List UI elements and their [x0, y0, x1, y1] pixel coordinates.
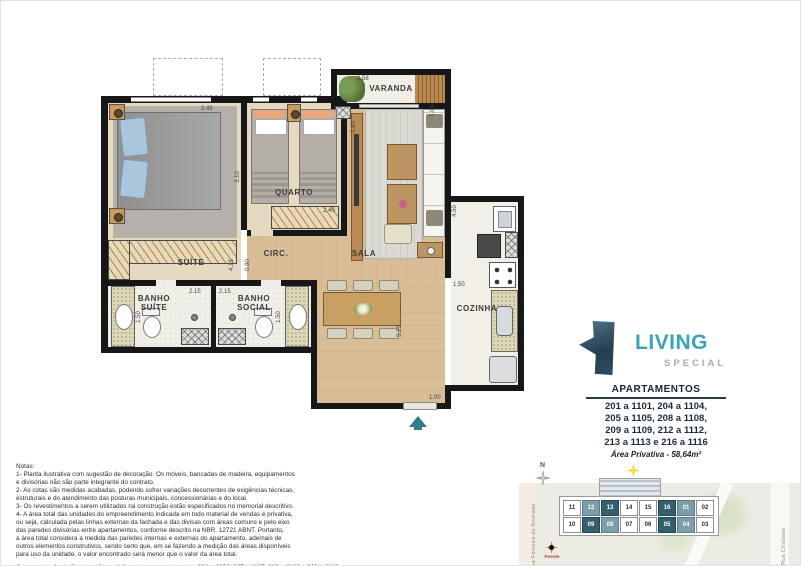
- sofa-pillow-2: [426, 210, 443, 226]
- notes-block: Notas: 1- Planta ilustrativa com sugestã…: [16, 463, 416, 566]
- dining-chair: [379, 280, 399, 291]
- apartments-title: APARTAMENTOS: [586, 384, 726, 395]
- suite-nightstand-2: [109, 208, 125, 224]
- banho-suite-door-gap: [156, 280, 176, 286]
- dim-sala-left: 2.80: [351, 121, 357, 133]
- banho-social-door-gap: [261, 280, 281, 286]
- stove: [489, 262, 516, 288]
- wall-cozinha-right: [518, 196, 524, 391]
- compass-north-label: N: [540, 462, 545, 469]
- toilet-bowl: [143, 316, 161, 338]
- site-map: N Nascente 11 12 13 14 15 16 01 02 10 09…: [515, 459, 801, 566]
- lamp-icon: [114, 109, 123, 118]
- dim-banho-suite-left: 1.50: [136, 311, 142, 323]
- suite-nightstand-1: [109, 104, 125, 120]
- lamp-icon: [291, 110, 300, 119]
- building-facade-thumb: [599, 478, 661, 498]
- suite-wardrobe-side: [108, 240, 130, 280]
- quarto-nightstand: [287, 104, 301, 122]
- notes-line: 2- As cotas são medidas acabadas, podend…: [16, 487, 416, 495]
- unit-cell: 11: [563, 500, 581, 516]
- unit-cell: 06: [639, 517, 657, 533]
- unit-cell: 03: [696, 517, 714, 533]
- dim-suite-top: 2.45: [201, 106, 213, 112]
- notes-line: estruturais e do atendimento das postura…: [16, 495, 416, 503]
- room-label-cozinha: COZINHA: [451, 304, 503, 313]
- brochure-page: VARANDA QUARTO SUÍTE CIRC. SALA BANHO SU…: [0, 0, 801, 566]
- wall-cozinha-top: [445, 196, 524, 202]
- side-table: [417, 242, 443, 258]
- apartments-underline: [586, 397, 726, 399]
- quarto-door-gap: [251, 230, 273, 236]
- unit-cell: 10: [563, 517, 581, 533]
- room-label-suite: SUÍTE: [151, 258, 231, 267]
- room-label-banho-suite: BANHO SUÍTE: [129, 294, 179, 312]
- dim-circ-b: 0.90: [245, 259, 251, 271]
- decor-icon: [427, 247, 435, 255]
- room-label-sala: SALA: [339, 249, 389, 258]
- notes-line: outros elementos construtivos, sendo cer…: [16, 543, 416, 551]
- dim-sala-right: 5.25: [397, 325, 403, 337]
- notes-line: das paredes divisórias entre apartamento…: [16, 527, 416, 535]
- wall-right-upper: [445, 69, 451, 278]
- living-logo-mark: [575, 321, 627, 375]
- bed-cushion: [302, 110, 334, 118]
- notes-line: e divisórias não são parte integrante do…: [16, 479, 416, 487]
- circ-floor: [247, 230, 347, 286]
- unit-cell: 09: [582, 517, 600, 533]
- unit-cell: 07: [620, 517, 638, 533]
- suite-pillow-1: [119, 117, 149, 158]
- suite-pillow-2: [119, 159, 149, 200]
- washing-machine: [489, 356, 517, 383]
- bed-pillow: [303, 119, 335, 135]
- street-label-right: Rua Cristiano: [781, 495, 787, 565]
- compass-rose-icon: [535, 470, 551, 486]
- unit-cell: 15: [639, 500, 657, 516]
- bed-cushion: [254, 110, 286, 118]
- quarto-window-2: [301, 97, 317, 102]
- room-label-circ: CIRC.: [251, 249, 301, 258]
- notes-line: 1- Planta ilustrativa com sugestão de de…: [16, 471, 416, 479]
- private-area-label: Área Privativa - 58,64m²: [576, 450, 736, 459]
- entry-door-sill: [403, 402, 437, 410]
- room-label-varanda: VARANDA: [356, 84, 426, 93]
- unit-cell: 02: [696, 500, 714, 516]
- dining-chair: [327, 280, 347, 291]
- dining-chair: [353, 328, 373, 339]
- unit-cell: 04: [677, 517, 695, 533]
- banho-social-shower-box: [218, 328, 246, 345]
- toilet-bowl: [255, 316, 273, 338]
- wall-suite-quarto: [241, 103, 247, 230]
- notes-line: 4- A área total das unidades do empreend…: [16, 511, 416, 519]
- apartments-line: 213 a 1113 e 216 a 1116: [576, 437, 736, 449]
- dim-quarto-left: 3.10: [235, 171, 241, 183]
- apartments-line: 201 a 1101, 204 a 1104,: [576, 401, 736, 413]
- dining-chair: [327, 328, 347, 339]
- banho-social-sink: [289, 304, 307, 330]
- dim-varanda-right: 1.03: [430, 105, 436, 117]
- fridge: [493, 206, 516, 232]
- entry-arrow-stem: [414, 426, 422, 430]
- pouf: [384, 224, 412, 244]
- unit-cell: 16: [658, 500, 676, 516]
- wall-bath-divider: [211, 286, 216, 347]
- brand-subtitle: SPECIAL: [664, 358, 726, 369]
- wall-cozinha-bottom: [445, 385, 524, 391]
- wall-left: [101, 96, 108, 353]
- sun-west-label: Poente: [535, 554, 569, 559]
- suite-window: [131, 97, 211, 102]
- shower-head-icon: [229, 314, 236, 321]
- notes-line: ou seja, calculada pelas linhas externas…: [16, 519, 416, 527]
- unit-cell: 13: [601, 500, 619, 516]
- coffee-table-2: [387, 184, 417, 224]
- fridge-interior: [498, 211, 512, 228]
- banho-suite-shower-box: [181, 328, 209, 345]
- tv: [354, 134, 359, 206]
- notes-line: a área total considera a medida das pare…: [16, 535, 416, 543]
- dim-varanda-top: 2.58: [357, 76, 369, 82]
- unit-cell: 08: [601, 517, 619, 533]
- apartments-line: 209 a 1109, 212 a 1112,: [576, 425, 736, 437]
- lamp-icon: [114, 213, 123, 222]
- flower-centerpiece: [354, 303, 372, 315]
- sun-west-icon: [545, 541, 558, 554]
- varanda-ac-unit: [335, 106, 351, 119]
- unit-cell: 01: [677, 500, 695, 516]
- dim-circ-a: 4.15: [229, 259, 235, 271]
- room-label-quarto: QUARTO: [256, 188, 332, 197]
- kitchen-hatch-area: [505, 232, 518, 258]
- banho-social-toilet: [253, 308, 273, 338]
- quarto-window-1: [253, 97, 269, 102]
- notes-line: 3- Os revestimentos a serem utilizados n…: [16, 503, 416, 511]
- wall-bath-bottom: [101, 347, 317, 353]
- dim-entry: 1.00: [429, 395, 441, 401]
- coffee-table-1: [387, 144, 417, 180]
- ac-ledge-quarto: [263, 58, 321, 96]
- dim-banho-suite-top: 2.15: [189, 289, 201, 295]
- bed-pillow: [255, 119, 287, 135]
- apartments-list: 201 a 1101, 204 a 1104, 205 a 1105, 208 …: [576, 401, 736, 449]
- room-label-banho-social: BANHO SOCIAL: [229, 294, 279, 312]
- dining-table: [323, 292, 401, 326]
- brand-name: LIVING: [635, 331, 708, 355]
- notes-line: para uso da unidade, o valor encontrado …: [16, 551, 416, 559]
- sofa: [423, 109, 445, 237]
- unit-cell: 05: [658, 517, 676, 533]
- unit-cell: 14: [620, 500, 638, 516]
- shower-head-icon: [191, 314, 198, 321]
- varanda-sliding-door: [359, 104, 419, 108]
- dining-chair: [353, 280, 373, 291]
- dim-cozinha-left: 1.50: [453, 282, 465, 288]
- decor-icon: [399, 200, 407, 208]
- notes-line: Notas:: [16, 463, 416, 471]
- unit-cell: 12: [582, 500, 600, 516]
- dim-banho-social-top: 2.15: [219, 289, 231, 295]
- dim-quarto-right: 2.40: [323, 208, 335, 214]
- ac-ledge-suite: [153, 58, 223, 96]
- dim-cozinha-right: 4.50: [452, 205, 458, 217]
- banho-suite-toilet: [141, 308, 161, 338]
- apartments-line: 205 a 1105, 208 a 1108,: [576, 413, 736, 425]
- floor-plan: VARANDA QUARTO SUÍTE CIRC. SALA BANHO SU…: [101, 56, 533, 428]
- dim-banho-social-right: 1.50: [276, 311, 282, 323]
- sun-east-icon: [627, 464, 640, 477]
- wall-quarto-sala: [341, 103, 347, 230]
- oven-microwave: [477, 234, 501, 258]
